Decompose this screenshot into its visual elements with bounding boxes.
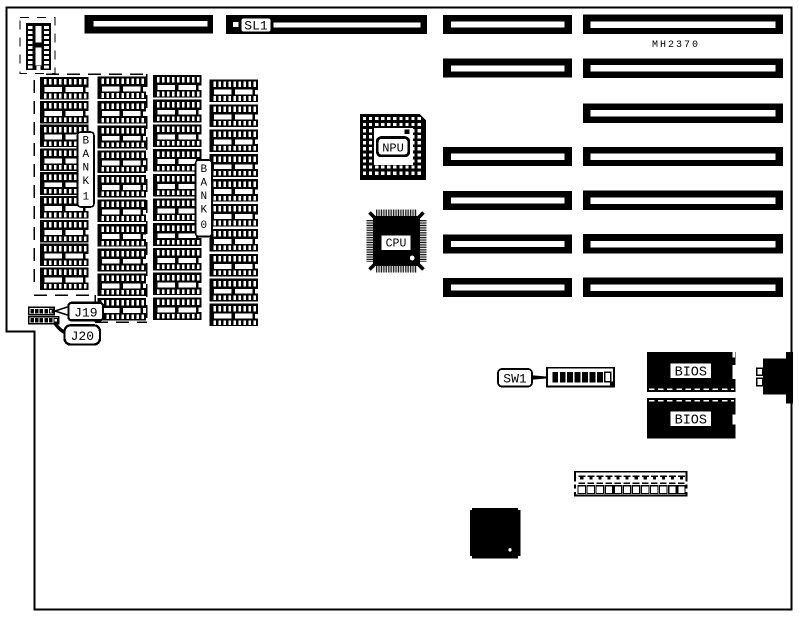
svg-text:CPU: CPU <box>386 238 407 251</box>
svg-text:SW1: SW1 <box>503 372 527 387</box>
svg-text:A: A <box>82 149 89 161</box>
svg-text:1: 1 <box>82 192 89 204</box>
svg-text:BIOS: BIOS <box>675 414 707 429</box>
svg-text:B: B <box>82 136 89 148</box>
svg-text:SL1: SL1 <box>244 19 268 34</box>
svg-text:0: 0 <box>200 220 207 232</box>
svg-text:A: A <box>200 178 207 190</box>
svg-text:BIOS: BIOS <box>675 366 707 381</box>
svg-text:MH2370: MH2370 <box>652 40 700 51</box>
svg-text:K: K <box>82 176 89 188</box>
svg-text:N: N <box>200 191 207 203</box>
svg-text:J20: J20 <box>71 329 94 344</box>
svg-text:K: K <box>200 205 207 217</box>
svg-text:NPU: NPU <box>382 142 404 156</box>
svg-text:B: B <box>200 164 207 176</box>
svg-text:J19: J19 <box>74 306 97 321</box>
svg-text:N: N <box>82 163 89 175</box>
